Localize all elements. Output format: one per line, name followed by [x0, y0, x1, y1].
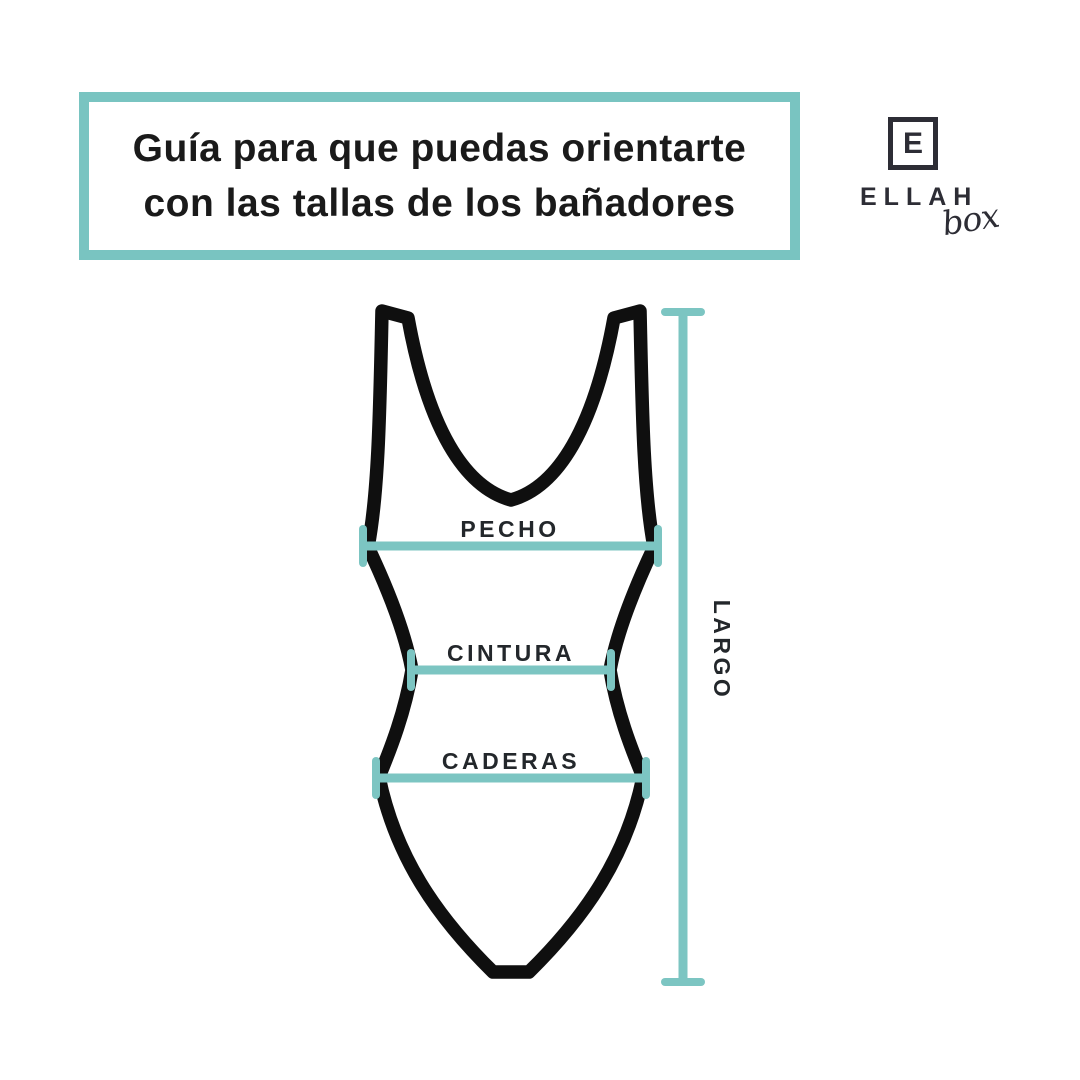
chest-label: PECHO: [460, 516, 559, 542]
waist-label: CINTURA: [447, 640, 575, 666]
hips-label: CADERAS: [442, 748, 580, 774]
swimsuit-diagram: PECHO CINTURA CADERAS LARGO: [0, 0, 1080, 1080]
waist-measure-cap-right: [607, 649, 615, 691]
length-label: LARGO: [709, 600, 735, 701]
length-measure-cap-bottom: [661, 978, 705, 986]
length-measure-cap-top: [661, 308, 705, 316]
size-guide-infographic: Guía para que puedas orientarte con las …: [0, 0, 1080, 1080]
waist-measure-cap-left: [407, 649, 415, 691]
hips-measure-cap-right: [642, 757, 650, 799]
chest-measure-cap-left: [359, 525, 367, 567]
hips-measure-cap-left: [372, 757, 380, 799]
chest-measure-cap-right: [654, 525, 662, 567]
